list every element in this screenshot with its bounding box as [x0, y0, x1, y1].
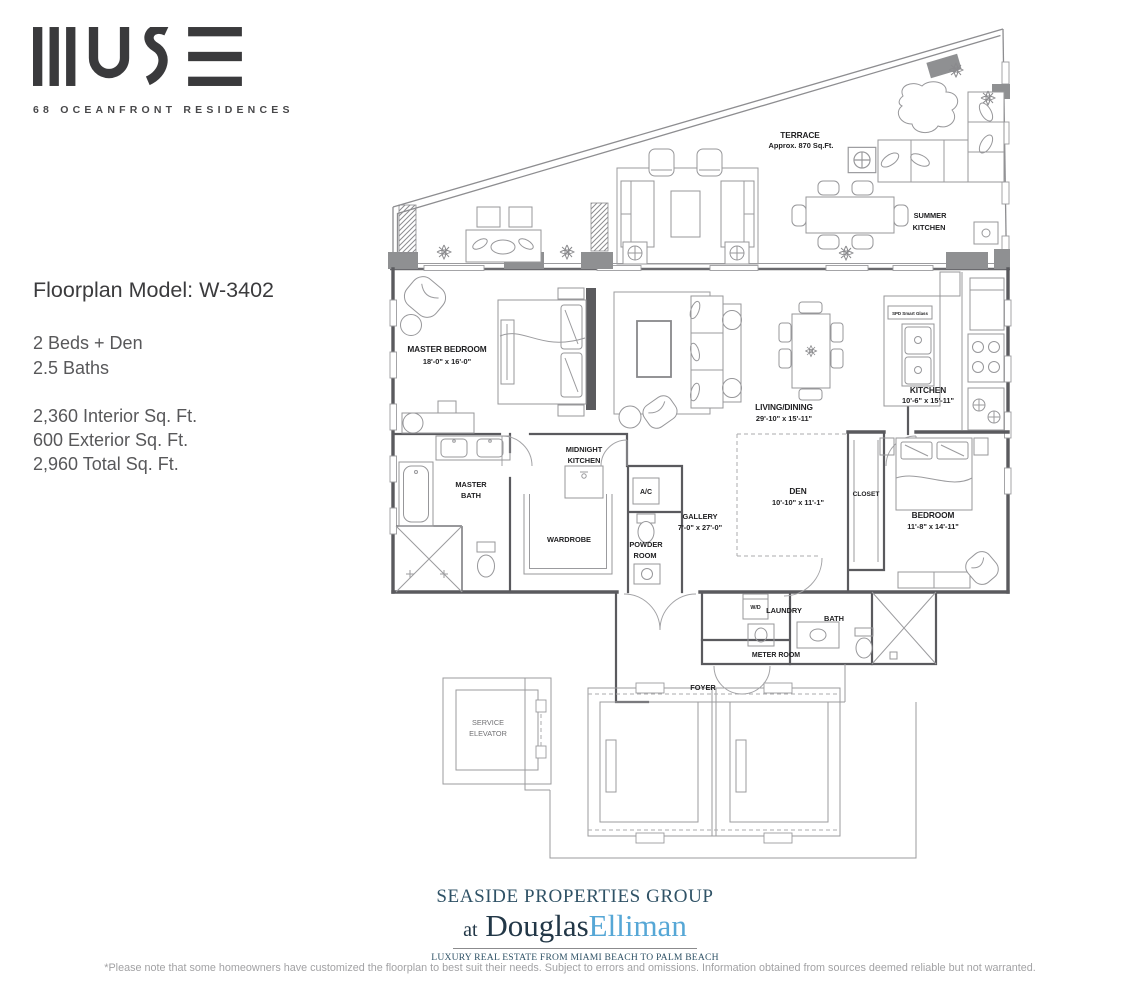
master-bath-label-2: BATH [461, 491, 481, 500]
douglas-elliman-logo: at DouglasElliman [420, 909, 730, 947]
service-elevator-label-2: ELEVATOR [469, 729, 507, 738]
exterior-sqft-line: 600 Exterior Sq. Ft. [33, 428, 274, 452]
bath-label: BATH [824, 614, 844, 623]
master-bath-fixtures [396, 436, 510, 592]
ac-label: A/C [640, 489, 652, 496]
gallery-label: GALLERY [682, 512, 717, 521]
seaside-properties-group: SEASIDE PROPERTIES GROUP [420, 886, 730, 908]
brokerage-branding: SEASIDE PROPERTIES GROUP at DouglasEllim… [420, 886, 730, 963]
baths-line: 2.5 Baths [33, 356, 274, 381]
bedroom-label: BEDROOM [912, 510, 955, 520]
powder-room-fixtures [634, 514, 660, 584]
douglas-word: Douglas [485, 908, 588, 943]
meter-room-label: METER ROOM [752, 652, 800, 659]
gallery-dims: 7'-0" x 27'-0" [678, 523, 723, 532]
muse-logo-icon [33, 27, 245, 86]
den-dims: 10'-10" x 11'-1" [772, 498, 825, 507]
midnight-kitchen-label-2: KITCHEN [568, 456, 601, 465]
kitchen-dims: 10'-6" x 15'-11" [902, 396, 955, 405]
floorplan-model-title: Floorplan Model: W-3402 [33, 278, 274, 303]
laundry-label: LAUNDRY [766, 606, 802, 615]
spd-smart-glass-label: SPD Smart Glass [892, 311, 928, 316]
muse-logo: 68 OCEANFRONT RESIDENCES [33, 27, 294, 116]
master-bedroom-label: MASTER BEDROOM [407, 344, 486, 354]
living-dining-label: LIVING/DINING [755, 402, 813, 412]
powder-room-label-2: ROOM [634, 551, 657, 560]
interior-sqft-line: 2,360 Interior Sq. Ft. [33, 404, 274, 428]
living-room-furniture [614, 292, 742, 432]
midnight-kitchen-label-1: MIDNIGHT [566, 445, 603, 454]
disclaimer-text: *Please note that some homeowners have c… [0, 962, 1140, 974]
summer-kitchen-label-2: KITCHEN [913, 223, 946, 232]
den-label: DEN [789, 486, 806, 496]
laundry-fixtures [743, 594, 774, 646]
kitchen-label: KITCHEN [910, 385, 946, 395]
floorplan-flyer-page: 68 OCEANFRONT RESIDENCES Floorplan Model… [0, 0, 1140, 986]
terrace-furniture [399, 63, 1004, 264]
foyer-label: FOYER [690, 683, 716, 692]
unit-info: Floorplan Model: W-3402 2 Beds + Den 2.5… [33, 278, 274, 476]
total-sqft-line: 2,960 Total Sq. Ft. [33, 452, 274, 476]
headboard-wall [586, 288, 596, 410]
elevator-core [443, 678, 916, 858]
master-bedroom-dims: 18'-0" x 16'-0" [423, 357, 472, 366]
master-bath-label-1: MASTER [455, 480, 487, 489]
wardrobe-label: WARDROBE [547, 535, 591, 544]
branding-divider [453, 948, 697, 949]
elliman-word: Elliman [589, 908, 687, 943]
living-dining-dims: 29'-10" x 15'-11" [756, 414, 813, 423]
wardrobe-closet [524, 494, 612, 574]
service-elevator-label-1: SERVICE [472, 718, 504, 727]
at-word: at [463, 919, 477, 941]
dining-set [779, 302, 843, 400]
wd-label: W/D [750, 605, 760, 611]
closet-label: CLOSET [853, 491, 880, 498]
powder-room-label-1: POWDER [629, 540, 663, 549]
bedroom-dims: 11'-8" x 14'-11" [907, 522, 959, 531]
kitchen-fixtures [884, 272, 1004, 430]
logo-tagline: 68 OCEANFRONT RESIDENCES [33, 104, 294, 116]
summer-kitchen-label-1: SUMMER [914, 211, 948, 220]
bath-fixtures [797, 592, 936, 664]
terrace-label: TERRACE [780, 130, 820, 140]
floorplan-drawing: TERRACE Approx. 870 Sq.Ft. SUMMER KITCHE… [370, 8, 1030, 876]
midnight-kitchen-counter [565, 466, 603, 498]
beds-line: 2 Beds + Den [33, 331, 274, 356]
terrace-area-label: Approx. 870 Sq.Ft. [769, 141, 834, 150]
